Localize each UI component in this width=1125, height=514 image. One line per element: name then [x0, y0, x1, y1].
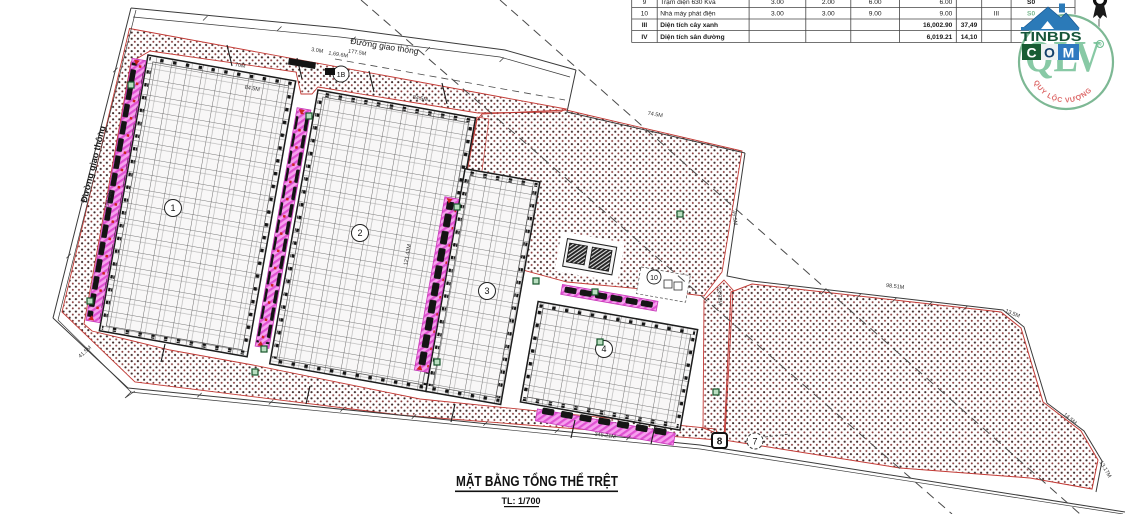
- svg-text:10: 10: [650, 275, 658, 282]
- svg-text:10: 10: [641, 11, 649, 18]
- svg-text:2.00: 2.00: [822, 0, 835, 6]
- svg-text:Nhà máy phát điện: Nhà máy phát điện: [660, 11, 716, 18]
- svg-text:TL: 1/700: TL: 1/700: [501, 496, 540, 506]
- svg-text:R: R: [1098, 43, 1102, 49]
- svg-text:1: 1: [170, 203, 175, 213]
- svg-text:3.00: 3.00: [771, 0, 784, 6]
- svg-text:3: 3: [484, 286, 489, 296]
- svg-text:Diện tích cây xanh: Diện tích cây xanh: [660, 22, 718, 29]
- svg-text:TINBDS: TINBDS: [1021, 29, 1082, 44]
- svg-text:Trạm điện 630 Kva: Trạm điện 630 Kva: [660, 0, 716, 6]
- svg-text:6.00: 6.00: [939, 0, 952, 6]
- svg-text:MẶT BẰNG TỔNG THỂ TRỆT: MẶT BẰNG TỔNG THỂ TRỆT: [456, 472, 618, 490]
- svg-text:3.00: 3.00: [771, 11, 784, 18]
- svg-text:6.00: 6.00: [869, 0, 882, 6]
- svg-text:M: M: [1063, 45, 1075, 61]
- svg-text:9.00: 9.00: [869, 11, 882, 18]
- svg-text:S0: S0: [1027, 0, 1035, 6]
- svg-text:4: 4: [601, 344, 606, 354]
- svg-text:Diện tích sân đường: Diện tích sân đường: [660, 34, 724, 41]
- svg-text:IV: IV: [641, 34, 648, 41]
- svg-text:8: 8: [717, 437, 723, 448]
- svg-text:2: 2: [357, 228, 362, 238]
- svg-text:C: C: [1026, 45, 1036, 61]
- svg-text:14,10: 14,10: [961, 34, 978, 41]
- svg-text:9: 9: [643, 0, 647, 6]
- svg-text:O: O: [1044, 45, 1055, 61]
- svg-text:37,49: 37,49: [961, 22, 978, 29]
- svg-text:16,002.90: 16,002.90: [923, 22, 953, 29]
- svg-text:3.00: 3.00: [822, 11, 835, 18]
- svg-text:III: III: [994, 11, 1000, 18]
- svg-text:6,019.21: 6,019.21: [927, 34, 953, 41]
- svg-text:S0: S0: [1027, 11, 1035, 18]
- svg-text:9.00: 9.00: [939, 11, 952, 18]
- svg-text:1B: 1B: [337, 72, 346, 79]
- svg-text:III: III: [642, 22, 648, 29]
- svg-text:7: 7: [752, 437, 757, 447]
